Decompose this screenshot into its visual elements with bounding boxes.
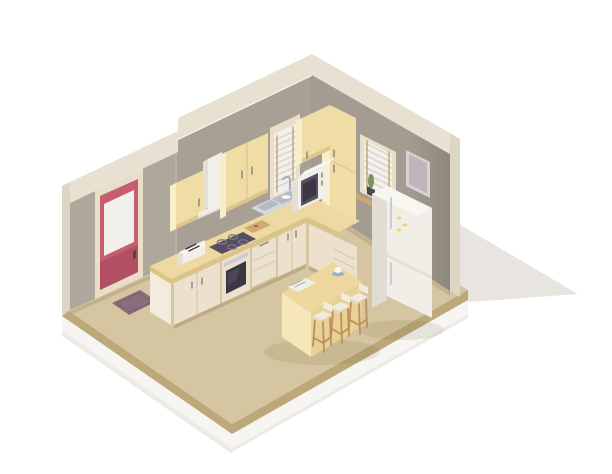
cutting-board-food xyxy=(254,225,258,227)
sink-dish xyxy=(282,195,291,199)
cactus-plant xyxy=(368,174,374,188)
cup xyxy=(335,267,342,273)
right-wall-cut-edge xyxy=(450,133,460,297)
wall-cabinet-a-side xyxy=(170,183,176,232)
door-handle xyxy=(133,250,136,259)
kitchen-illustration-canvas xyxy=(0,0,612,474)
left-wall-cut-edge xyxy=(62,182,70,316)
fridge-floor-shadow xyxy=(360,320,444,340)
kitchen-illustration xyxy=(0,0,612,474)
hood-duct-front xyxy=(208,152,222,212)
microwave-side xyxy=(292,178,298,213)
hood-duct-side xyxy=(203,159,208,211)
entrance-door xyxy=(95,165,143,299)
wall-cabinet-c-side xyxy=(296,118,302,166)
wall-cabinet-b-side xyxy=(220,152,226,219)
fridge-side xyxy=(372,186,387,308)
